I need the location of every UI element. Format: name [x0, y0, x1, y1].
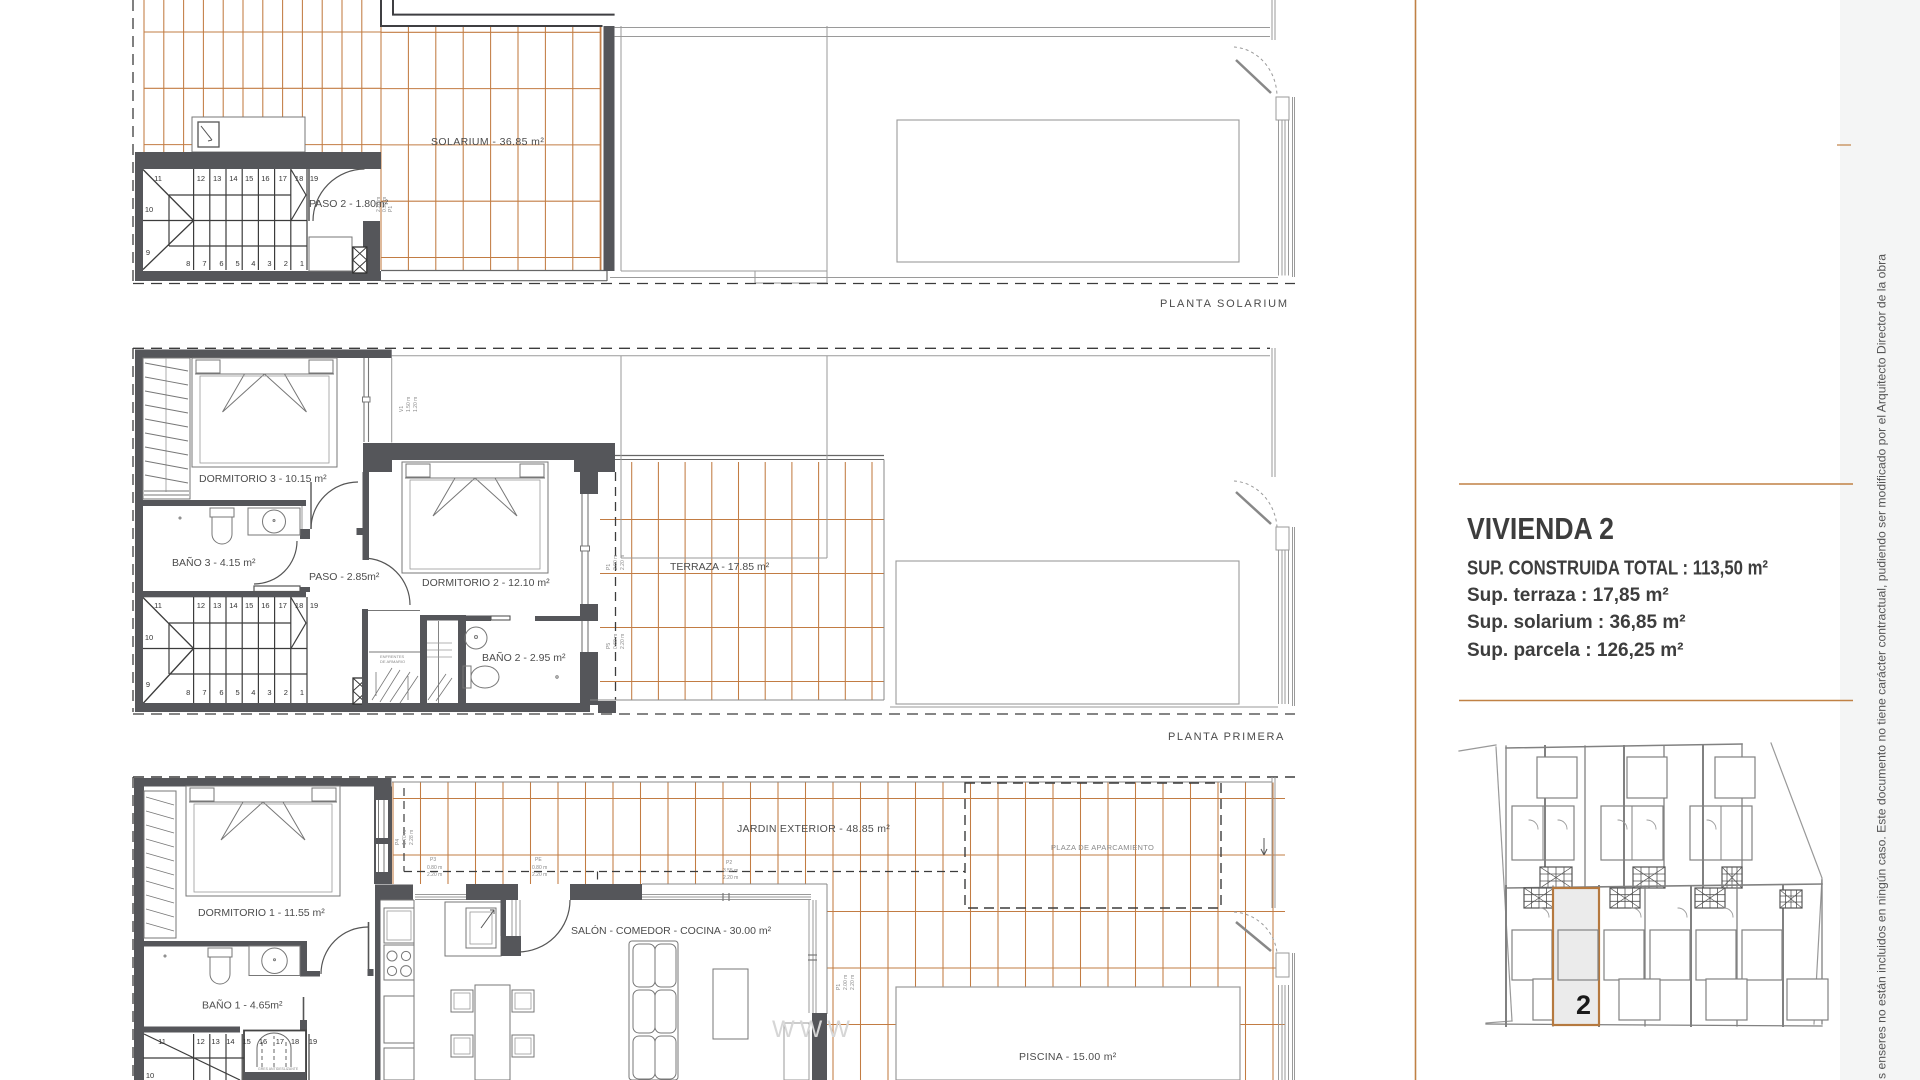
- svg-text:7: 7: [202, 259, 206, 268]
- svg-text:17: 17: [279, 601, 287, 610]
- svg-text:1.20 m: 1.20 m: [413, 397, 419, 412]
- svg-text:19: 19: [310, 601, 318, 610]
- svg-text:1: 1: [300, 688, 304, 697]
- svg-text:PLAZA DE APARCAMIENTO: PLAZA DE APARCAMIENTO: [1051, 843, 1154, 852]
- svg-text:P1: P1: [388, 206, 394, 212]
- svg-text:DE ARMARIO: DE ARMARIO: [380, 659, 405, 664]
- svg-text:19: 19: [310, 174, 318, 183]
- svg-text:WWW: WWW: [772, 1016, 855, 1043]
- svg-text:SALÓN - COMEDOR - COCINA - 30.: SALÓN - COMEDOR - COCINA - 30.00 m²: [571, 924, 772, 937]
- svg-text:15: 15: [245, 601, 253, 610]
- svg-text:13: 13: [213, 601, 221, 610]
- svg-text:13: 13: [213, 174, 221, 183]
- svg-text:s enseres no están incluidos e: s enseres no están incluidos en ningún c…: [1875, 254, 1889, 1079]
- svg-text:2.20 m: 2.20 m: [850, 975, 856, 990]
- svg-text:0.60 m: 0.60 m: [613, 634, 619, 649]
- svg-text:PISCINA - 15.00 m²: PISCINA - 15.00 m²: [1019, 1051, 1117, 1063]
- svg-text:BAÑO 3 - 4.15 m²: BAÑO 3 - 4.15 m²: [172, 556, 256, 569]
- svg-text:0.80 m: 0.80 m: [427, 865, 442, 871]
- svg-text:1.70 m: 1.70 m: [402, 830, 408, 845]
- svg-text:11: 11: [154, 601, 162, 610]
- svg-text:9: 9: [146, 248, 150, 257]
- svg-text:2.20 m: 2.20 m: [532, 872, 547, 878]
- svg-text:4: 4: [251, 259, 255, 268]
- svg-text:13: 13: [211, 1037, 219, 1046]
- svg-text:TERRAZA - 17.85 m²: TERRAZA - 17.85 m²: [670, 561, 770, 573]
- svg-text:P4: P4: [395, 839, 401, 845]
- svg-text:5: 5: [236, 688, 240, 697]
- svg-text:P1: P1: [836, 984, 842, 990]
- svg-text:2.00 m: 2.00 m: [843, 975, 849, 990]
- svg-text:0.80 m: 0.80 m: [532, 865, 547, 871]
- svg-text:2.28 m: 2.28 m: [409, 830, 415, 845]
- svg-text:0.90 m: 0.90 m: [382, 197, 388, 212]
- svg-text:14: 14: [226, 1037, 234, 1046]
- svg-text:P3: P3: [430, 857, 436, 863]
- svg-text:DORMITORIO 2 - 12.10 m²: DORMITORIO 2 - 12.10 m²: [422, 577, 550, 589]
- svg-text:P1: P1: [606, 564, 612, 570]
- svg-text:2: 2: [1576, 990, 1591, 1020]
- svg-text:14: 14: [229, 601, 237, 610]
- svg-text:SOLARIUM - 36.85 m²: SOLARIUM - 36.85 m²: [431, 136, 544, 148]
- svg-text:DORMITORIO 3 - 10.15 m²: DORMITORIO 3 - 10.15 m²: [199, 473, 327, 485]
- svg-text:2.20 m: 2.20 m: [376, 197, 382, 212]
- svg-text:1: 1: [300, 259, 304, 268]
- svg-text:5: 5: [236, 259, 240, 268]
- svg-text:GRES ANTIDESLIZANTE: GRES ANTIDESLIZANTE: [258, 1067, 299, 1071]
- svg-text:PLANTA PRIMERA: PLANTA PRIMERA: [1168, 731, 1285, 743]
- svg-text:2.20 m: 2.20 m: [427, 872, 442, 878]
- svg-text:JARDIN EXTERIOR - 48.85 m²: JARDIN EXTERIOR - 48.85 m²: [737, 823, 890, 835]
- svg-text:3: 3: [267, 688, 271, 697]
- svg-text:12: 12: [197, 174, 205, 183]
- svg-text:Sup. terraza : 17,85 m²: Sup. terraza : 17,85 m²: [1467, 585, 1669, 606]
- svg-text:9: 9: [146, 680, 150, 689]
- svg-text:BAÑO 1 - 4.65m²: BAÑO 1 - 4.65m²: [202, 999, 283, 1012]
- svg-text:BAÑO 2 - 2.95 m²: BAÑO 2 - 2.95 m²: [482, 651, 566, 664]
- svg-text:PE: PE: [535, 857, 542, 863]
- svg-text:2.00 m: 2.00 m: [613, 555, 619, 570]
- svg-text:P5: P5: [606, 643, 612, 649]
- svg-text:17: 17: [279, 174, 287, 183]
- svg-text:DORMITORIO 1 - 11.55 m²: DORMITORIO 1 - 11.55 m²: [198, 907, 325, 919]
- svg-text:SUP. CONSTRUIDA TOTAL : 113,50: SUP. CONSTRUIDA TOTAL : 113,50 m²: [1467, 558, 1768, 580]
- svg-text:4: 4: [251, 688, 255, 697]
- svg-text:15: 15: [245, 174, 253, 183]
- svg-text:P2: P2: [726, 860, 732, 866]
- svg-text:PASO - 2.85m²: PASO - 2.85m²: [309, 571, 380, 583]
- svg-text:7: 7: [202, 688, 206, 697]
- svg-text:2: 2: [284, 259, 288, 268]
- svg-text:Sup. solarium : 36,85 m²: Sup. solarium : 36,85 m²: [1467, 612, 1686, 633]
- svg-text:3.55 m: 3.55 m: [723, 868, 738, 874]
- svg-text:Sup. parcela : 126,25 m²: Sup. parcela : 126,25 m²: [1467, 640, 1684, 661]
- svg-text:8: 8: [186, 688, 190, 697]
- svg-text:17: 17: [276, 1037, 284, 1046]
- svg-text:16: 16: [261, 174, 269, 183]
- svg-text:18: 18: [295, 601, 303, 610]
- svg-text:10: 10: [145, 205, 153, 214]
- svg-text:10: 10: [145, 633, 153, 642]
- svg-text:15: 15: [243, 1037, 251, 1046]
- svg-text:10: 10: [146, 1071, 154, 1080]
- svg-text:2.20 m: 2.20 m: [723, 875, 738, 881]
- svg-text:14: 14: [229, 174, 237, 183]
- svg-text:16: 16: [261, 601, 269, 610]
- svg-text:6: 6: [219, 688, 223, 697]
- svg-text:12: 12: [197, 601, 205, 610]
- svg-text:PLANTA SOLARIUM: PLANTA SOLARIUM: [1160, 298, 1289, 310]
- svg-text:6: 6: [219, 259, 223, 268]
- svg-text:19: 19: [309, 1037, 317, 1046]
- svg-text:18: 18: [291, 1037, 299, 1046]
- svg-text:3: 3: [267, 259, 271, 268]
- svg-text:V1: V1: [399, 406, 405, 412]
- svg-text:18: 18: [295, 174, 303, 183]
- svg-text:VIVIENDA 2: VIVIENDA 2: [1467, 511, 1614, 546]
- svg-text:16: 16: [259, 1037, 267, 1046]
- svg-text:1.50 m: 1.50 m: [406, 397, 412, 412]
- svg-text:12: 12: [197, 1037, 205, 1046]
- svg-text:8: 8: [186, 259, 190, 268]
- svg-text:11: 11: [154, 174, 162, 183]
- svg-text:2.20 m: 2.20 m: [620, 634, 626, 649]
- svg-text:2: 2: [284, 688, 288, 697]
- svg-text:11: 11: [158, 1037, 166, 1046]
